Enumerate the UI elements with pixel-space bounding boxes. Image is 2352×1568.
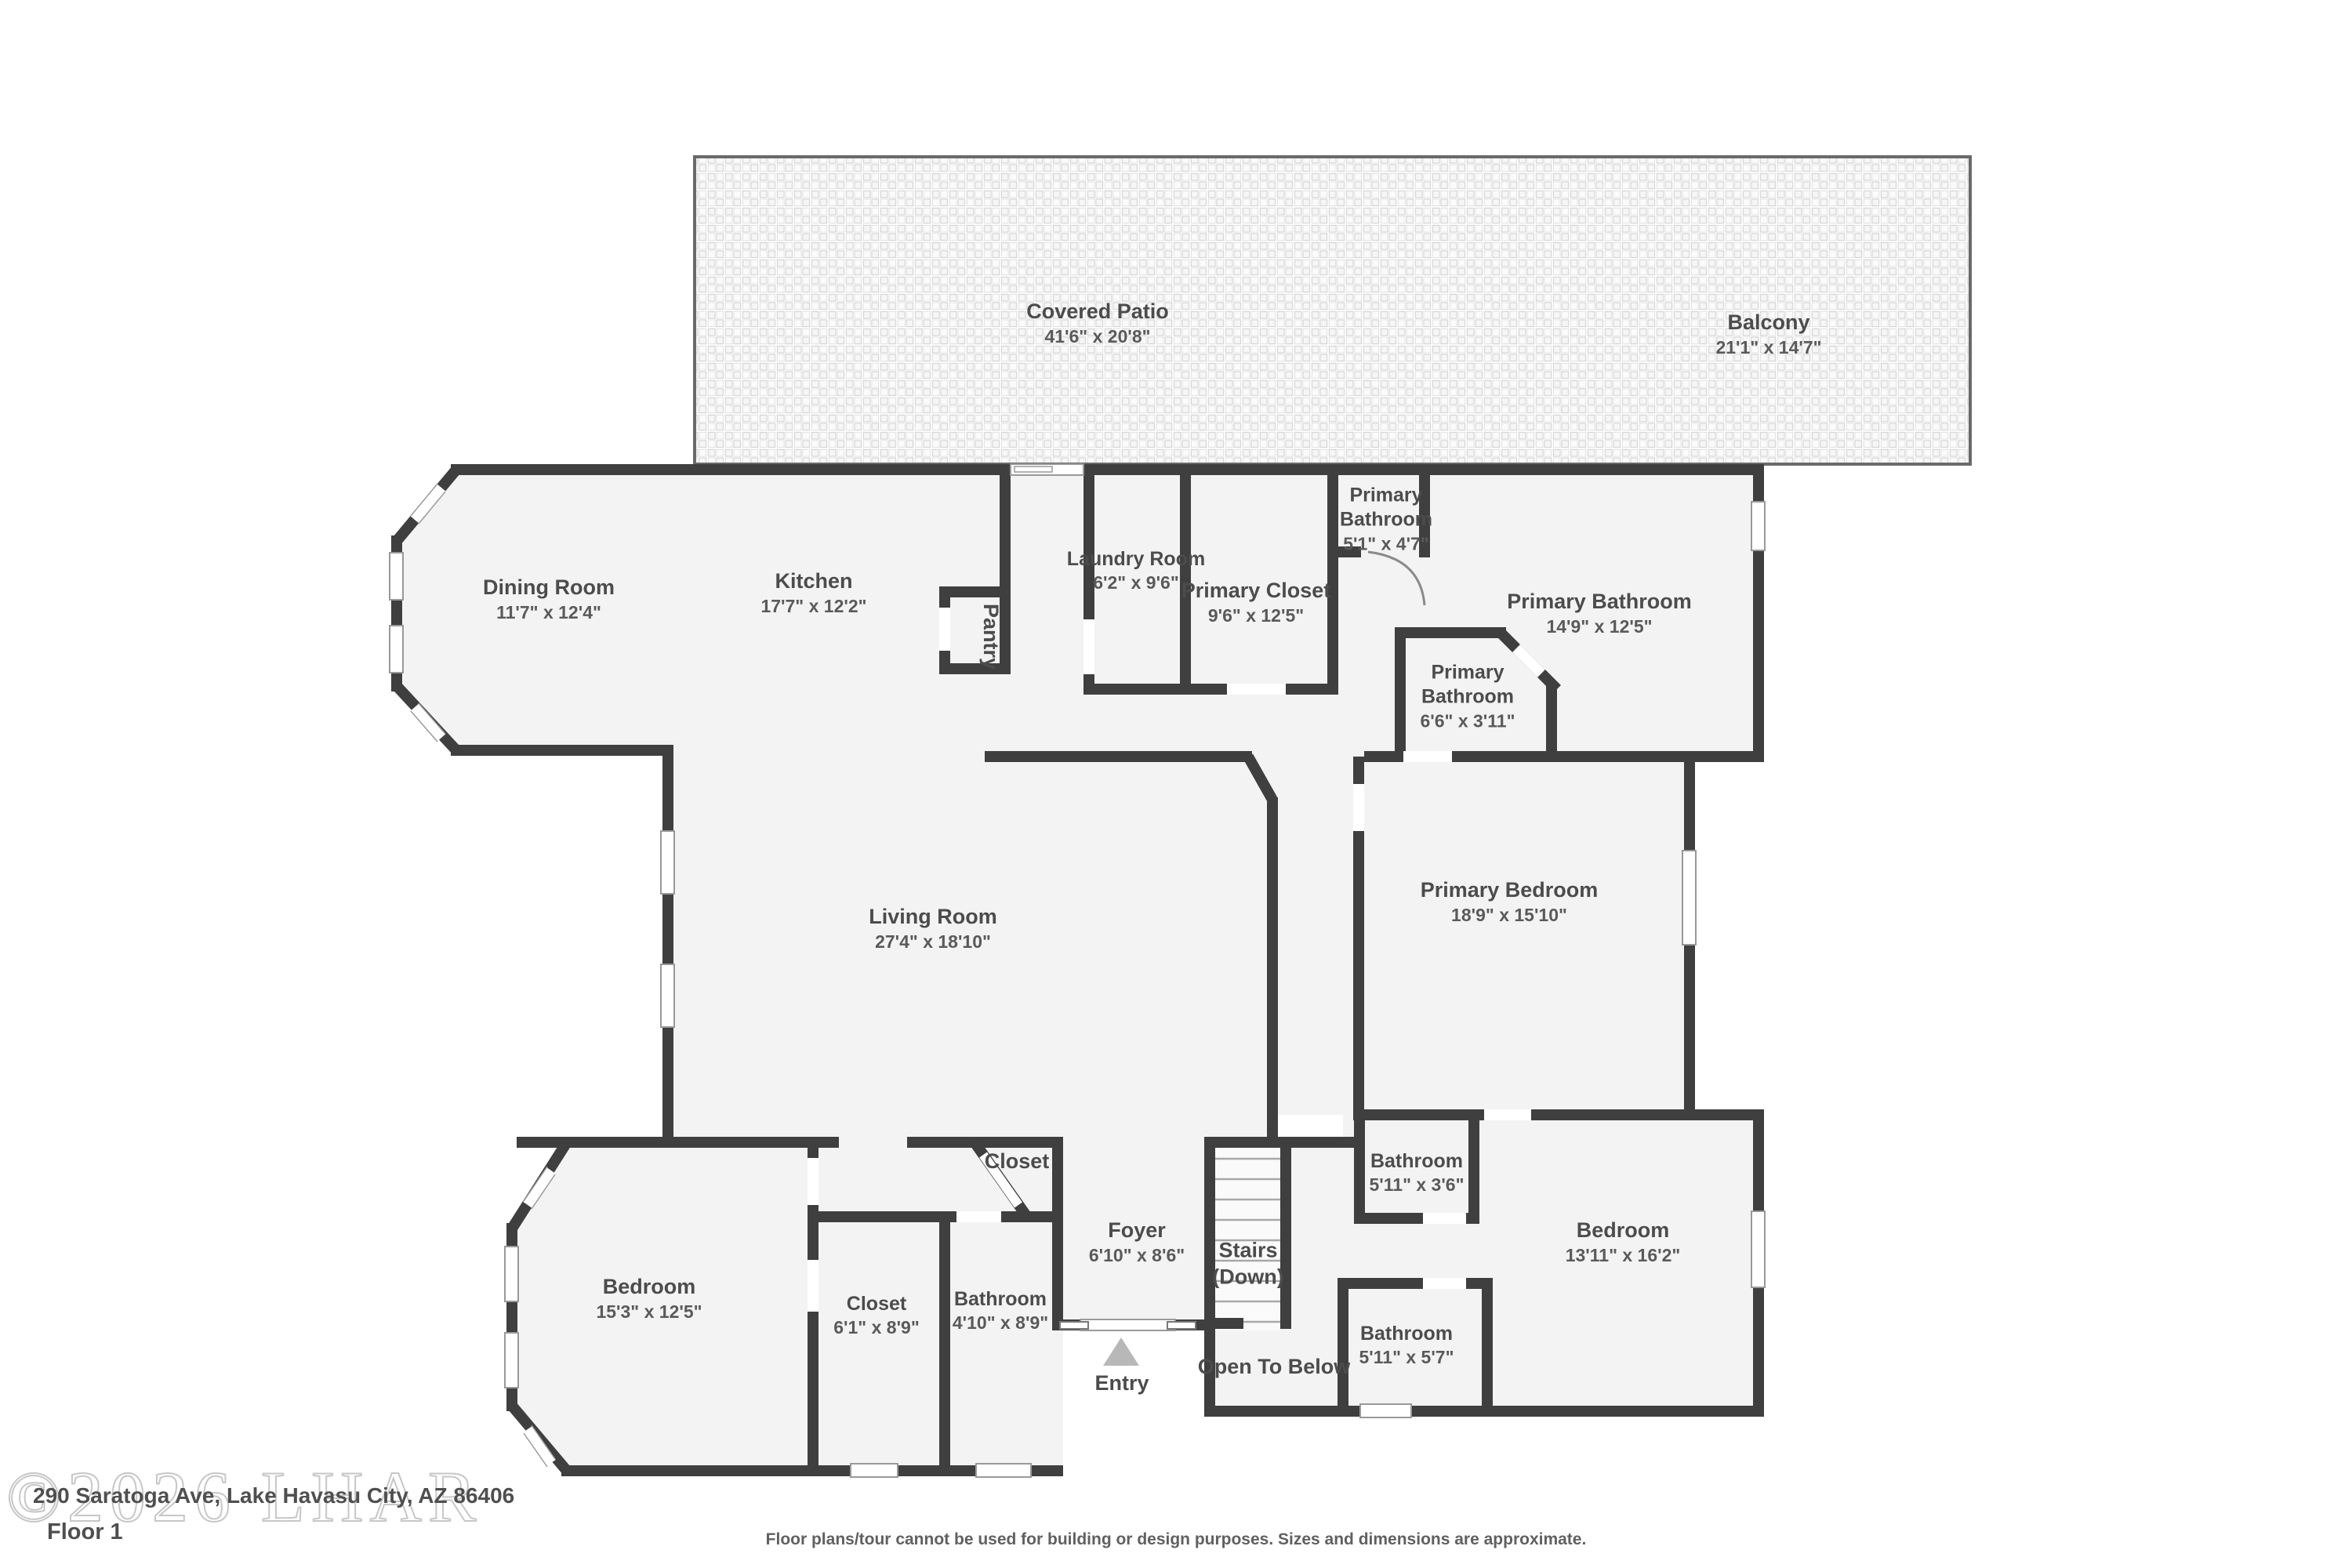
label-covered-patio: Covered Patio 41'6" x 20'8" <box>1026 299 1169 348</box>
room-name: Balcony <box>1727 310 1809 334</box>
label-stairs: Stairs (Down) <box>1212 1237 1283 1290</box>
label-dining-room: Dining Room 11'7" x 12'4" <box>483 575 615 624</box>
room-dims: 5'11" x 3'6" <box>1369 1174 1464 1196</box>
room-name: Primary Bathroom <box>1507 590 1692 613</box>
stairs-treads <box>1215 1138 1280 1330</box>
room-name: Open To Below <box>1198 1355 1351 1378</box>
entry-door <box>1060 1319 1196 1330</box>
room-name: Entry <box>1094 1371 1149 1395</box>
label-bathroom-left: Bathroom 4'10" x 8'9" <box>953 1287 1048 1334</box>
label-closet-foyer: Closet <box>985 1149 1050 1175</box>
label-open-to-below: Open To Below <box>1198 1354 1351 1381</box>
room-name: Pantry <box>979 604 1003 670</box>
room-dims: 14'9" x 12'5" <box>1507 615 1692 638</box>
room-name: Covered Patio <box>1026 299 1169 323</box>
room-dims: 41'6" x 20'8" <box>1026 325 1169 348</box>
disclaimer-text: Floor plans/tour cannot be used for buil… <box>0 1530 2352 1549</box>
room-name: Stairs <box>1218 1238 1277 1261</box>
label-bathroom-lower: Bathroom 5'11" x 5'7" <box>1359 1322 1454 1369</box>
label-balcony: Balcony 21'1" x 14'7" <box>1715 310 1821 359</box>
label-living-room: Living Room 27'4" x 18'10" <box>869 904 997 953</box>
label-primary-bathroom-wc: Primary Bathroom 5'1" x 4'7" <box>1316 483 1457 554</box>
label-entry: Entry <box>1094 1370 1149 1397</box>
room-name: Foyer <box>1108 1218 1166 1242</box>
label-primary-closet: Primary Closet 9'6" x 12'5" <box>1181 578 1331 627</box>
room-dims: 5'11" x 5'7" <box>1359 1346 1454 1369</box>
label-primary-bedroom: Primary Bedroom 18'9" x 15'10" <box>1421 877 1599 927</box>
room-dims: 17'7" x 12'2" <box>760 595 866 618</box>
room-dims: 13'11" x 16'2" <box>1566 1244 1681 1267</box>
room-dims: 27'4" x 18'10" <box>869 931 997 953</box>
floor-plan-page: Covered Patio 41'6" x 20'8" Balcony 21'1… <box>0 0 2352 1568</box>
patio-door <box>1011 464 1083 475</box>
room-dims: 5'1" x 4'7" <box>1316 532 1457 555</box>
room-name: Closet <box>985 1149 1050 1173</box>
label-primary-bathroom: Primary Bathroom 14'9" x 12'5" <box>1507 589 1692 638</box>
label-bedroom-left: Bedroom 15'3" x 12'5" <box>596 1274 702 1323</box>
room-dims: 18'9" x 15'10" <box>1421 904 1599 927</box>
label-bedroom-right: Bedroom 13'11" x 16'2" <box>1566 1218 1681 1267</box>
room-dims: 6'10" x 8'6" <box>1089 1244 1185 1267</box>
room-dims: 21'1" x 14'7" <box>1715 336 1821 359</box>
room-dims: 6'6" x 3'11" <box>1401 710 1534 732</box>
room-name: Closet <box>847 1293 906 1315</box>
room-name: Bathroom <box>1370 1150 1463 1172</box>
room-name: Living Room <box>869 905 997 928</box>
room-name: Bedroom <box>603 1275 696 1298</box>
room-dims: (Down) <box>1212 1264 1283 1290</box>
room-name: Bathroom <box>1360 1323 1453 1345</box>
label-pantry: Pantry <box>977 604 1004 670</box>
room-name: Primary Bathroom <box>1340 484 1432 530</box>
label-primary-bathroom-small: Primary Bathroom 6'6" x 3'11" <box>1401 660 1534 731</box>
room-dims: 6'1" x 8'9" <box>833 1316 920 1339</box>
room-dims: 15'3" x 12'5" <box>596 1301 702 1323</box>
room-name: Bathroom <box>954 1288 1047 1310</box>
label-foyer: Foyer 6'10" x 8'6" <box>1089 1218 1185 1267</box>
entry-arrow-icon <box>1103 1338 1139 1366</box>
label-bathroom-upper: Bathroom 5'11" x 3'6" <box>1369 1149 1464 1196</box>
floor-plan-drawing <box>0 0 2352 1568</box>
room-dims: 11'7" x 12'4" <box>483 601 615 624</box>
room-dims: 9'6" x 12'5" <box>1181 604 1331 627</box>
property-address: 290 Saratoga Ave, Lake Havasu City, AZ 8… <box>33 1483 514 1508</box>
room-dims: 4'10" x 8'9" <box>953 1312 1048 1334</box>
room-name: Primary Bedroom <box>1421 878 1599 902</box>
label-closet-left: Closet 6'1" x 8'9" <box>833 1292 920 1339</box>
label-kitchen: Kitchen 17'7" x 12'2" <box>760 568 866 618</box>
room-name: Bedroom <box>1577 1218 1670 1242</box>
room-name: Kitchen <box>775 569 852 593</box>
room-name: Laundry Room <box>1067 548 1205 570</box>
room-name: Primary Closet <box>1181 579 1331 602</box>
room-name: Dining Room <box>483 575 615 599</box>
room-name: Primary Bathroom <box>1421 661 1514 707</box>
